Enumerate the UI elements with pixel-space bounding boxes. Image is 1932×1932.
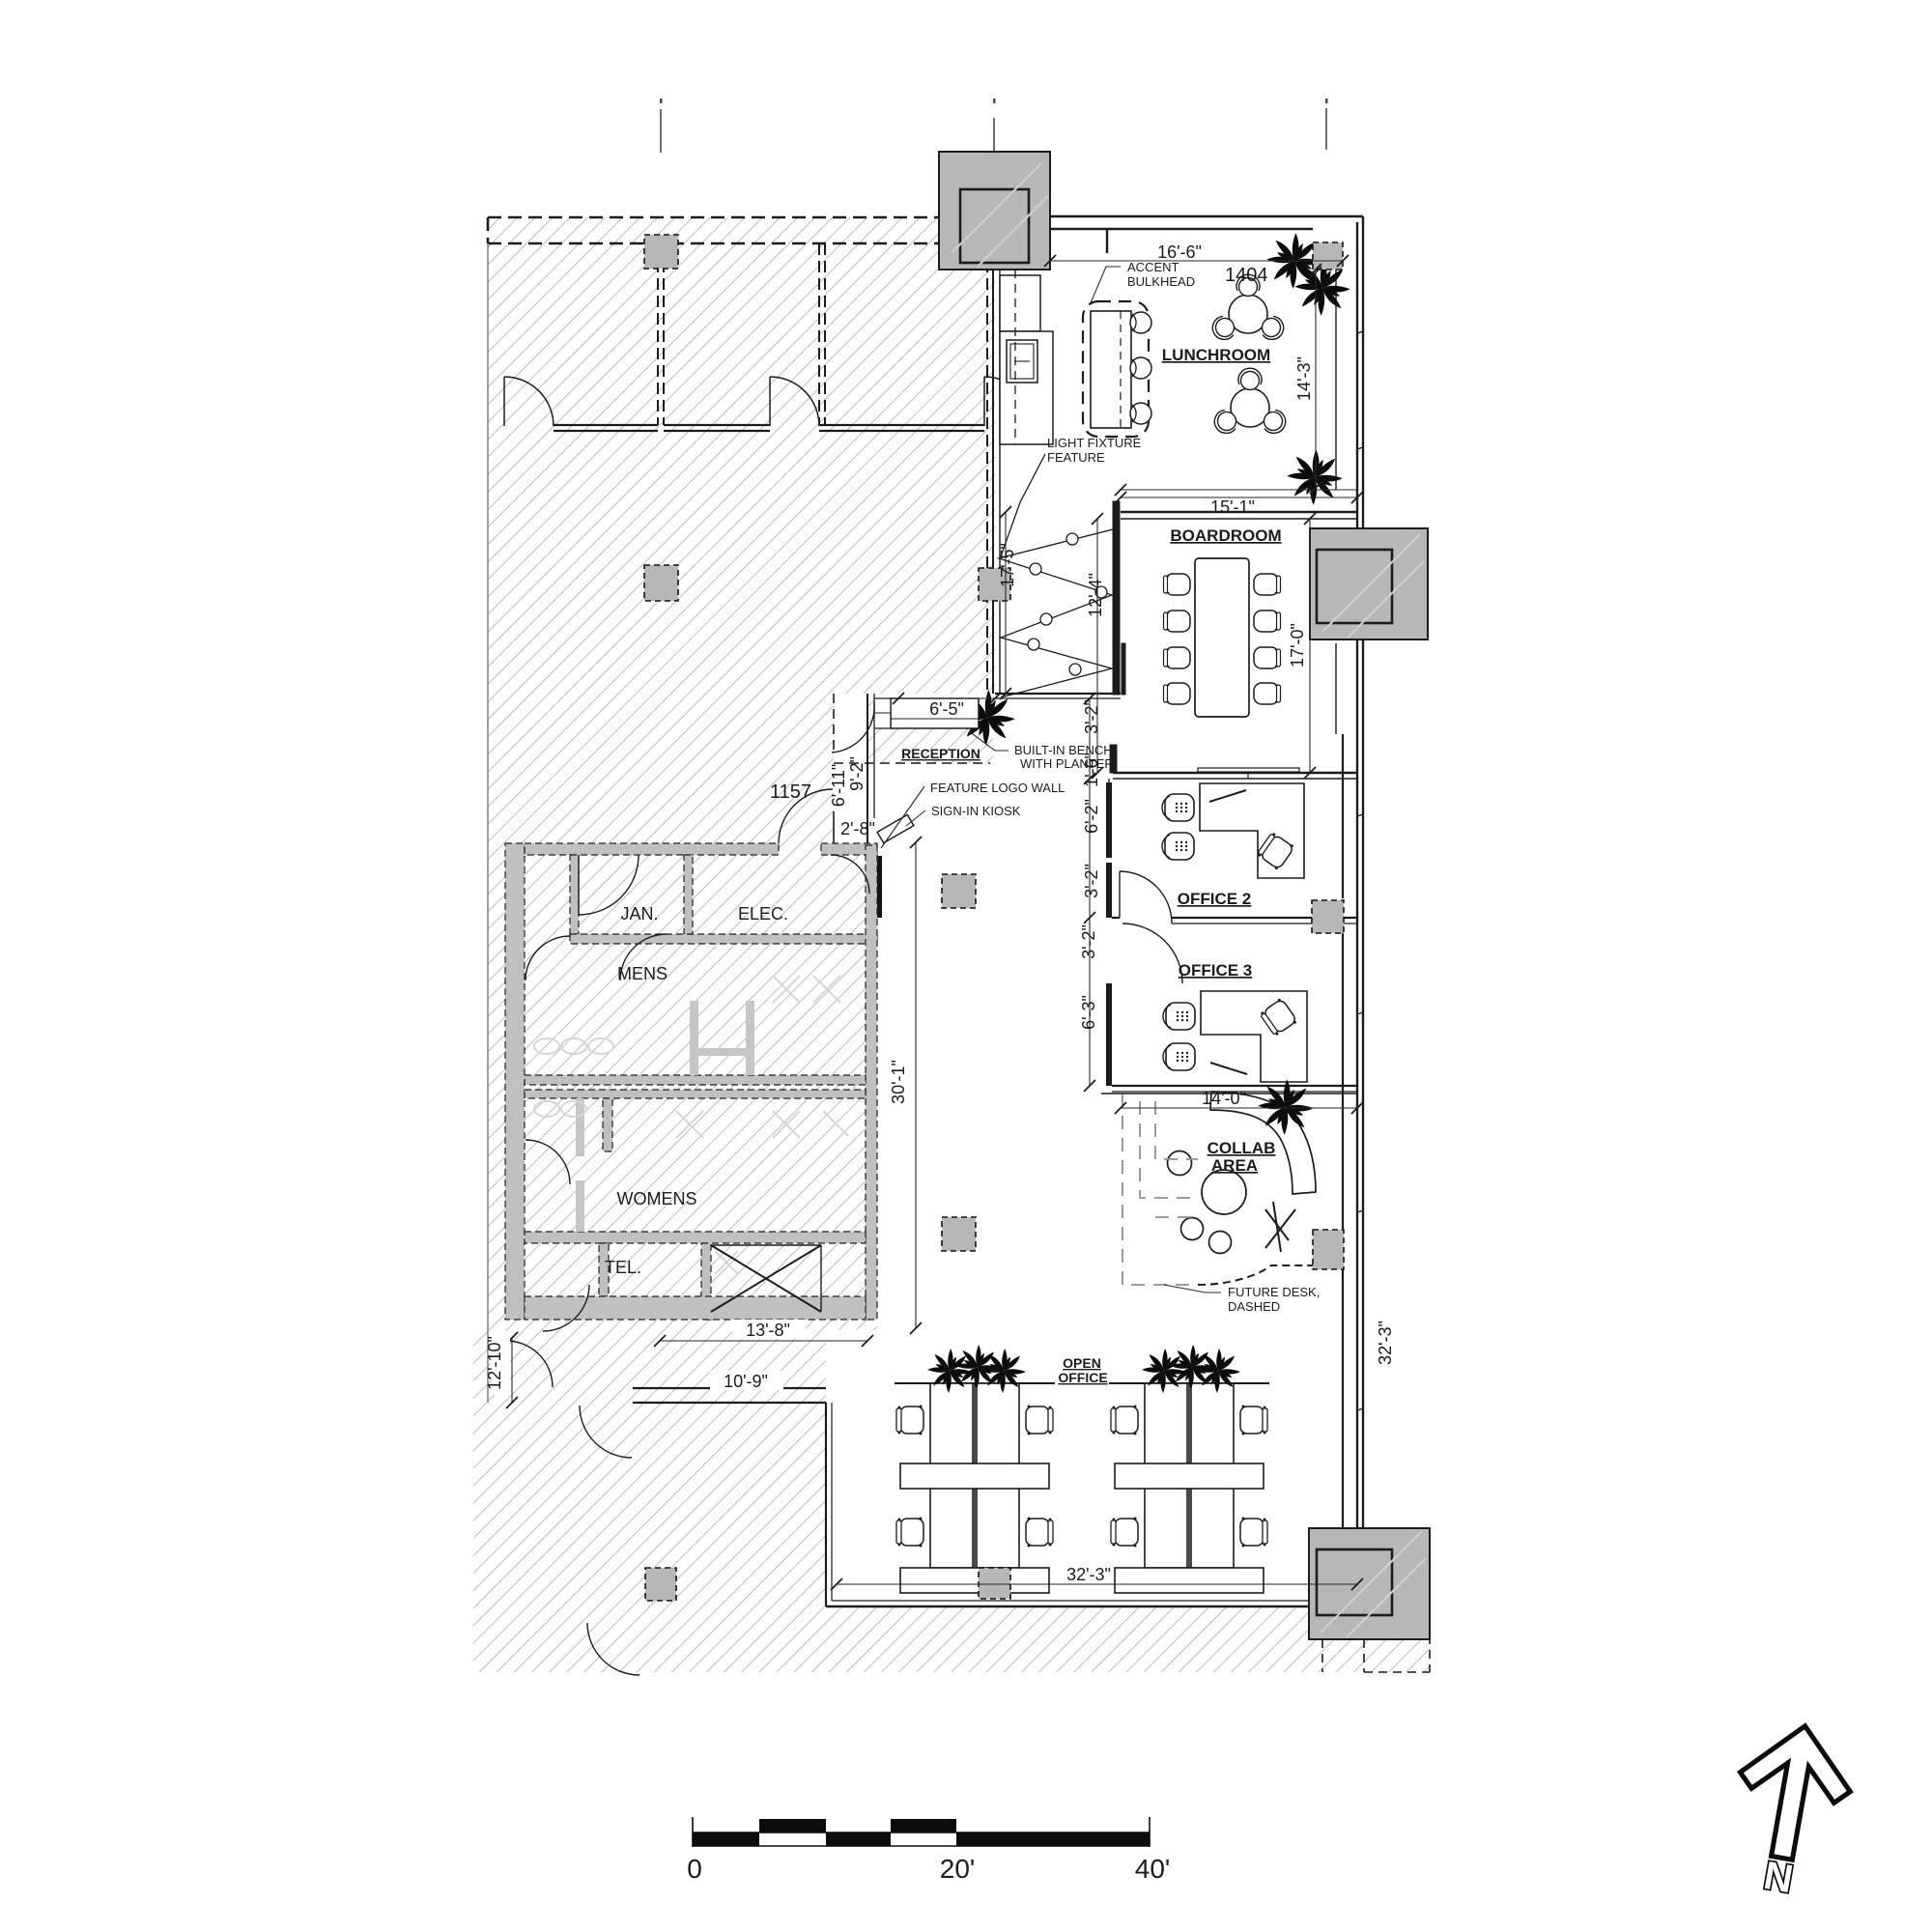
- svg-text:BOARDROOM: BOARDROOM: [1170, 526, 1281, 545]
- svg-text:BUILT-IN BENCH: BUILT-IN BENCH: [1014, 743, 1113, 757]
- svg-text:6'-3": 6'-3": [1079, 995, 1098, 1030]
- svg-text:9'-2": 9'-2": [847, 756, 867, 791]
- svg-text:2'-8": 2'-8": [840, 819, 875, 838]
- svg-text:1404: 1404: [1225, 265, 1268, 286]
- svg-text:JAN.: JAN.: [620, 904, 658, 923]
- svg-text:30'-1": 30'-1": [889, 1060, 908, 1104]
- svg-text:15'-1": 15'-1": [1210, 497, 1255, 517]
- svg-text:BULKHEAD: BULKHEAD: [1127, 274, 1195, 289]
- svg-text:OFFICE: OFFICE: [1058, 1370, 1107, 1385]
- svg-text:0: 0: [687, 1854, 702, 1884]
- svg-text:FEATURE: FEATURE: [1047, 450, 1105, 465]
- svg-text:MENS: MENS: [617, 964, 668, 983]
- svg-text:SIGN-IN KIOSK: SIGN-IN KIOSK: [931, 804, 1021, 818]
- svg-text:3'-2": 3'-2": [1079, 924, 1098, 959]
- svg-text:RECEPTION: RECEPTION: [901, 746, 980, 761]
- svg-text:14'-0": 14'-0": [1202, 1089, 1246, 1108]
- svg-text:17'-5": 17'-5": [998, 543, 1017, 587]
- svg-text:32'-3": 32'-3": [1376, 1321, 1395, 1365]
- svg-text:40': 40': [1135, 1854, 1171, 1884]
- svg-text:FUTURE DESK,: FUTURE DESK,: [1228, 1285, 1320, 1299]
- svg-text:OFFICE 3: OFFICE 3: [1179, 961, 1253, 980]
- svg-text:FEATURE LOGO WALL: FEATURE LOGO WALL: [930, 781, 1065, 795]
- svg-text:WITH PLANTER: WITH PLANTER: [1020, 756, 1114, 771]
- svg-text:10'-9": 10'-9": [724, 1372, 768, 1391]
- svg-text:6'-2": 6'-2": [1082, 799, 1101, 834]
- svg-text:COLLAB: COLLAB: [1207, 1139, 1276, 1157]
- svg-text:17'-0": 17'-0": [1288, 623, 1307, 668]
- svg-text:TEL.: TEL.: [605, 1258, 641, 1277]
- svg-text:12'-10": 12'-10": [485, 1336, 504, 1390]
- svg-text:ELEC.: ELEC.: [738, 904, 788, 923]
- svg-text:6'-5": 6'-5": [929, 699, 964, 719]
- svg-text:16'-6": 16'-6": [1157, 242, 1202, 262]
- svg-text:LUNCHROOM: LUNCHROOM: [1162, 346, 1270, 364]
- svg-text:12'-4": 12'-4": [1086, 573, 1105, 617]
- svg-text:WOMENS: WOMENS: [617, 1189, 697, 1208]
- svg-text:OFFICE 2: OFFICE 2: [1178, 890, 1252, 908]
- svg-text:3'-2": 3'-2": [1082, 864, 1101, 898]
- svg-text:LIGHT FIXTURE: LIGHT FIXTURE: [1047, 436, 1142, 450]
- svg-text:ACCENT: ACCENT: [1127, 260, 1179, 274]
- svg-text:1157: 1157: [770, 781, 811, 803]
- svg-text:6'-11": 6'-11": [829, 764, 848, 808]
- svg-text:14'-3": 14'-3": [1294, 356, 1314, 401]
- svg-text:32'-3": 32'-3": [1066, 1565, 1111, 1584]
- svg-text:3'-2": 3'-2": [1082, 699, 1101, 734]
- svg-text:OPEN: OPEN: [1063, 1355, 1101, 1371]
- svg-text:AREA: AREA: [1211, 1156, 1258, 1175]
- svg-text:DASHED: DASHED: [1228, 1299, 1280, 1314]
- svg-text:20': 20': [940, 1854, 976, 1884]
- svg-text:13'-8": 13'-8": [746, 1321, 790, 1340]
